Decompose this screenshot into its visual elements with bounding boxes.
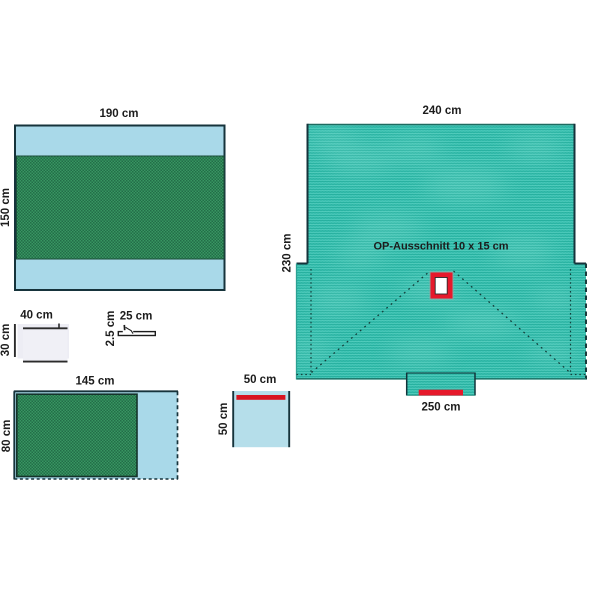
svg-text:25 cm: 25 cm [120,311,153,323]
svg-text:230 cm: 230 cm [282,233,294,272]
svg-text:250 cm: 250 cm [421,402,460,414]
svg-text:OP-Ausschnitt 10 x 15 cm: OP-Ausschnitt 10 x 15 cm [373,241,508,253]
svg-text:150 cm: 150 cm [0,188,12,227]
svg-text:190 cm: 190 cm [99,108,138,120]
svg-text:30 cm: 30 cm [0,324,12,357]
svg-text:50 cm: 50 cm [244,374,277,386]
svg-text:50 cm: 50 cm [218,403,230,436]
svg-text:2.5 cm: 2.5 cm [105,311,117,347]
svg-text:80 cm: 80 cm [1,420,13,453]
svg-text:240 cm: 240 cm [422,105,461,117]
svg-text:40 cm: 40 cm [20,310,53,322]
svg-text:145 cm: 145 cm [75,376,114,388]
